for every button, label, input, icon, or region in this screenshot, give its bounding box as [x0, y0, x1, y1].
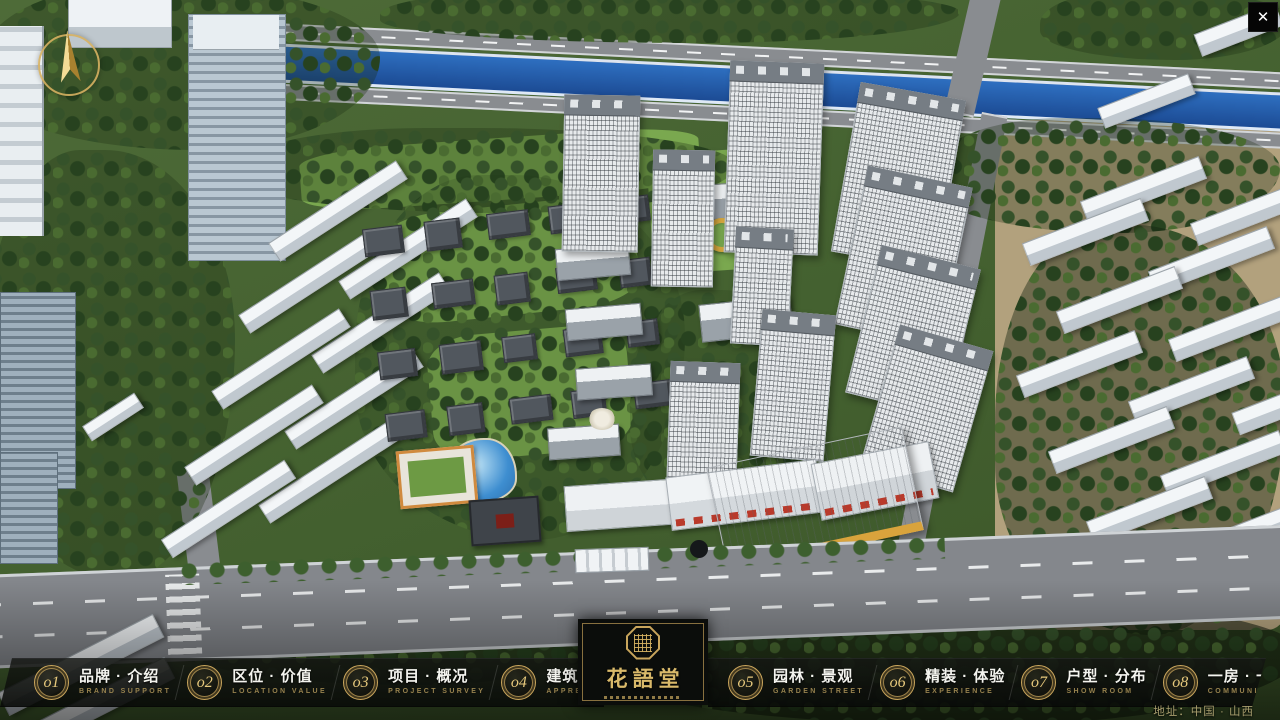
- nav-number: o6: [890, 674, 906, 692]
- courtyard-house: [486, 209, 531, 240]
- nav-label-zh: 一房 · 一景: [1208, 669, 1280, 686]
- nav-number: o2: [197, 674, 213, 692]
- entrance-gatehouse: [468, 496, 541, 547]
- residential-tower: [651, 149, 715, 287]
- nav-badge-icon: o6: [880, 665, 915, 700]
- garden-plaza: [588, 408, 616, 430]
- courtyard-house: [362, 225, 405, 258]
- site-map-3d-view[interactable]: [0, 0, 1280, 720]
- glass-tower-left: [188, 14, 286, 261]
- nav-item-location[interactable]: o2 区位 · 价值LOCATION VALUE: [179, 659, 335, 706]
- bottom-navigation: o1 品牌 · 介绍BRAND SUPPORT o2 区位 · 价值LOCATI…: [0, 658, 1280, 707]
- gatehouse-door: [496, 513, 515, 528]
- nav-label-zh: 户型 · 分布: [1066, 669, 1146, 686]
- compass[interactable]: [38, 34, 100, 96]
- nav-item-project[interactable]: o3 项目 · 概况PROJECT SURVEY: [335, 659, 493, 706]
- courtyard-house: [385, 409, 428, 442]
- nav-label-en: GARDEN STREET: [773, 688, 864, 696]
- courtyard-house: [439, 340, 484, 375]
- tower-roof: [653, 149, 715, 171]
- nav-label-zh: 项目 · 概况: [388, 669, 485, 686]
- entrance-canopy: [575, 547, 650, 574]
- nav-item-garden[interactable]: o5 园林 · 景观GARDEN STREET: [720, 659, 872, 706]
- nav-badge-icon: o8: [1163, 665, 1198, 700]
- nav-number: o7: [1031, 674, 1047, 692]
- crosswalk: [165, 574, 202, 655]
- tower-roof: [730, 60, 825, 84]
- nav-label-zh: 品牌 · 介绍: [79, 669, 171, 686]
- nav-label-en: SHOW ROOM: [1066, 688, 1146, 696]
- nav-number: o3: [353, 674, 369, 692]
- courtyard-house: [493, 272, 530, 306]
- nav-badge-icon: o7: [1021, 665, 1056, 700]
- residential-tower: [750, 309, 837, 462]
- nav-number: o1: [44, 674, 60, 692]
- nav-badge-icon: o4: [501, 665, 536, 700]
- nav-label-en: PROJECT SURVEY: [388, 688, 485, 696]
- project-logo-panel[interactable]: 花語堂: [578, 619, 708, 705]
- logo-subtext-decoration: [604, 696, 682, 699]
- plaza-circle: [690, 540, 708, 558]
- close-button[interactable]: ✕: [1248, 2, 1278, 32]
- nav-badge-icon: o5: [728, 665, 763, 700]
- nav-label-zh: 区位 · 价值: [232, 669, 327, 686]
- seal-inner: [628, 628, 658, 658]
- project-title: 花語堂: [607, 663, 685, 693]
- tower-roof: [735, 227, 794, 251]
- courtyard-house: [447, 402, 486, 436]
- courtyard-house: [424, 217, 463, 251]
- residential-tower: [562, 94, 641, 252]
- nav-label-zh: 园林 · 景观: [773, 669, 864, 686]
- glass-tower-left: [0, 452, 58, 564]
- nav-item-brand[interactable]: o1 品牌 · 介绍BRAND SUPPORT: [26, 659, 179, 706]
- nav-label-zh: 精装 · 体验: [925, 669, 1005, 686]
- courtyard-house: [377, 348, 418, 380]
- tower-roof: [761, 309, 837, 336]
- nav-label-en: BRAND SUPPORT: [79, 688, 171, 696]
- courtyard-house: [501, 333, 538, 363]
- nav-item-floorplan[interactable]: o7 户型 · 分布SHOW ROOM: [1013, 659, 1154, 706]
- clubhouse-courtyard: [408, 457, 467, 498]
- nav-group-right: o5 园林 · 景观GARDEN STREET o6 精装 · 体验EXPERI…: [708, 658, 1266, 707]
- midrise-building: [547, 424, 621, 461]
- nav-badge-icon: o3: [343, 665, 378, 700]
- tower-roof: [670, 361, 741, 384]
- presentation-window: ✕ o1 品牌 · 介绍BRAND SUPPORT o2 区位 · 价值LOCA…: [0, 0, 1280, 720]
- nav-label-en: EXPERIENCE: [925, 688, 1005, 696]
- nav-item-community[interactable]: o8 一房 · 一景COMMUNITY: [1155, 659, 1280, 706]
- nav-number: o8: [1172, 674, 1188, 692]
- nav-group-left: o1 品牌 · 介绍BRAND SUPPORT o2 区位 · 价值LOCATI…: [0, 658, 604, 707]
- courtyard-house: [508, 394, 553, 425]
- highrise-left-edge: [0, 26, 44, 236]
- clubhouse-building: [396, 445, 479, 510]
- nav-badge-icon: o1: [34, 665, 69, 700]
- project-address: 地址：中国 · 山西: [1153, 703, 1254, 719]
- courtyard-house: [369, 287, 408, 321]
- logo-gold-frame: 花語堂: [582, 623, 704, 701]
- nav-label-en: LOCATION VALUE: [232, 688, 327, 696]
- seal-glyph-pattern: [634, 634, 652, 652]
- seal-emblem-icon: [626, 626, 660, 660]
- nav-badge-icon: o2: [187, 665, 222, 700]
- compass-north-needle-icon: [54, 29, 84, 83]
- midrise-building: [575, 363, 653, 400]
- nav-number: o5: [738, 674, 754, 692]
- close-icon: ✕: [1257, 8, 1270, 26]
- nav-item-interior[interactable]: o6 精装 · 体验EXPERIENCE: [872, 659, 1013, 706]
- nav-number: o4: [511, 674, 527, 692]
- tower-roof: [564, 94, 640, 116]
- midrise-building: [565, 303, 643, 342]
- nav-label-en: COMMUNITY: [1208, 688, 1280, 696]
- tower-roof: [193, 15, 279, 50]
- courtyard-house: [431, 278, 476, 309]
